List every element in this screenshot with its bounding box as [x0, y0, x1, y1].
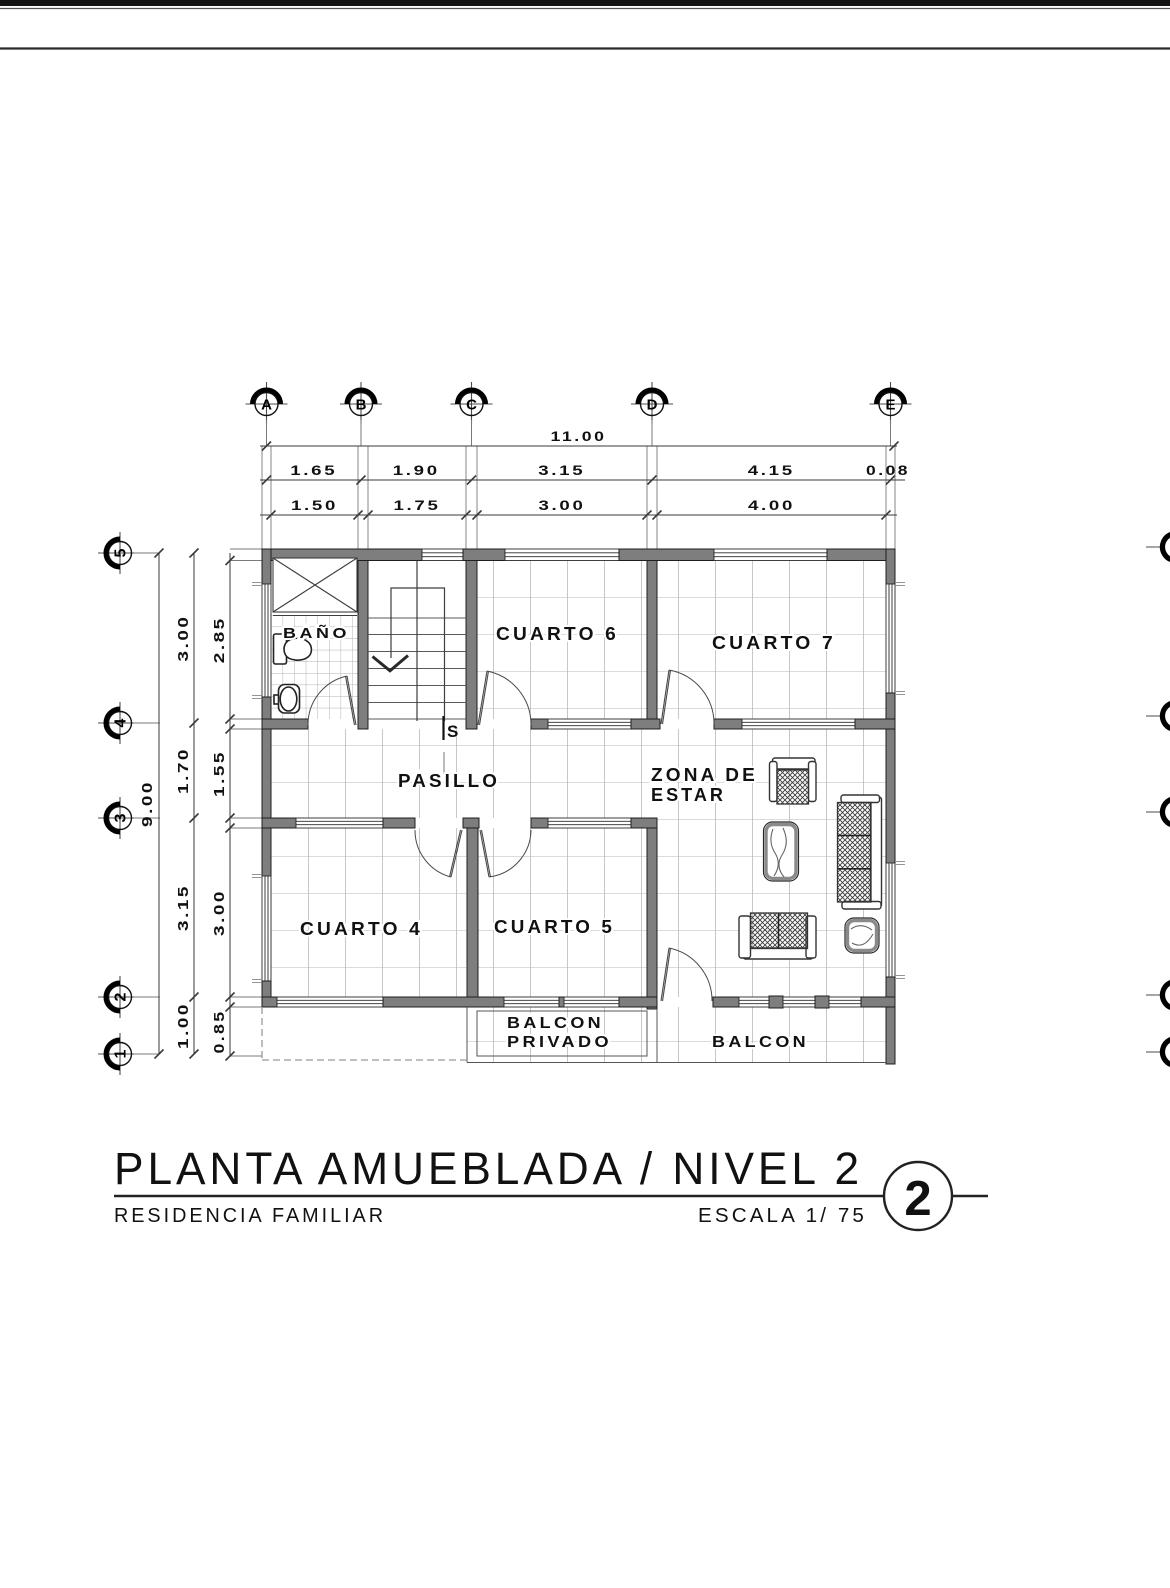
svg-text:1.55: 1.55 — [211, 750, 228, 797]
svg-text:3.00: 3.00 — [211, 889, 228, 936]
svg-text:BALCON: BALCON — [507, 1015, 604, 1032]
svg-text:9.00: 9.00 — [139, 780, 156, 827]
svg-text:2: 2 — [904, 1172, 931, 1226]
svg-text:B: B — [356, 397, 367, 414]
svg-text:CUARTO 4: CUARTO 4 — [300, 919, 423, 939]
svg-text:4: 4 — [113, 718, 130, 727]
svg-text:ZONA DE: ZONA DE — [651, 765, 758, 785]
svg-text:3.15: 3.15 — [538, 462, 585, 478]
svg-text:PRIVADO: PRIVADO — [507, 1034, 612, 1051]
svg-text:PLANTA AMUEBLADA / NIVEL 2: PLANTA AMUEBLADA / NIVEL 2 — [114, 1143, 863, 1194]
svg-text:5: 5 — [113, 548, 130, 557]
svg-text:RESIDENCIA FAMILIAR: RESIDENCIA FAMILIAR — [114, 1205, 386, 1227]
svg-text:1.90: 1.90 — [393, 462, 440, 478]
svg-text:CUARTO 6: CUARTO 6 — [496, 624, 619, 644]
svg-text:11.00: 11.00 — [551, 428, 607, 444]
svg-text:2.85: 2.85 — [211, 616, 228, 663]
svg-text:E: E — [885, 397, 895, 414]
svg-text:1.75: 1.75 — [394, 497, 441, 513]
svg-text:ESTAR: ESTAR — [651, 785, 726, 805]
svg-text:1: 1 — [113, 1049, 130, 1058]
svg-text:3.15: 3.15 — [175, 884, 192, 931]
svg-text:1.65: 1.65 — [290, 462, 337, 478]
svg-text:BALCON: BALCON — [712, 1034, 809, 1051]
svg-text:1.00: 1.00 — [175, 1002, 192, 1049]
svg-text:CUARTO 7: CUARTO 7 — [712, 633, 836, 653]
svg-text:ESCALA 1/ 75: ESCALA 1/ 75 — [698, 1205, 867, 1227]
svg-text:PASILLO: PASILLO — [398, 771, 500, 791]
svg-text:4.15: 4.15 — [748, 462, 795, 478]
svg-text:0.85: 0.85 — [211, 1010, 228, 1054]
svg-text:D: D — [647, 397, 658, 414]
svg-text:0.08: 0.08 — [866, 462, 910, 478]
svg-text:2: 2 — [113, 992, 130, 1001]
svg-text:CUARTO 5: CUARTO 5 — [494, 917, 615, 937]
svg-text:3.00: 3.00 — [175, 615, 192, 662]
svg-text:1.50: 1.50 — [291, 497, 338, 513]
svg-text:BAÑO: BAÑO — [283, 624, 350, 642]
svg-text:3: 3 — [113, 813, 130, 822]
svg-text:1.70: 1.70 — [175, 747, 192, 794]
svg-text:3.00: 3.00 — [539, 497, 586, 513]
svg-text:S: S — [447, 722, 458, 741]
svg-text:C: C — [466, 397, 477, 414]
svg-text:4.00: 4.00 — [748, 497, 795, 513]
svg-text:A: A — [261, 397, 272, 414]
